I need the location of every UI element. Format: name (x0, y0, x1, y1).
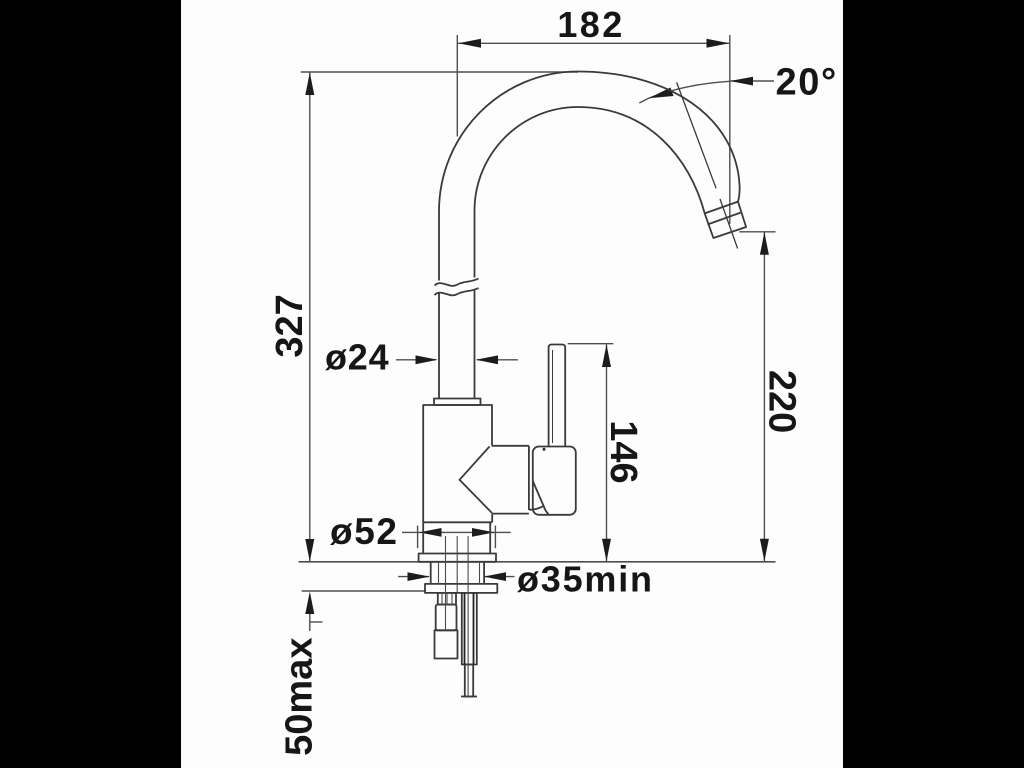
svg-text:327: 327 (269, 294, 311, 357)
svg-text:50max: 50max (279, 638, 321, 756)
svg-text:182: 182 (557, 4, 624, 45)
svg-text:ø52: ø52 (330, 511, 399, 552)
svg-text:146: 146 (602, 420, 644, 483)
svg-text:220: 220 (761, 370, 803, 433)
svg-text:ø24: ø24 (325, 337, 389, 378)
svg-text:20°: 20° (776, 62, 838, 104)
svg-text:ø35min: ø35min (517, 559, 654, 600)
